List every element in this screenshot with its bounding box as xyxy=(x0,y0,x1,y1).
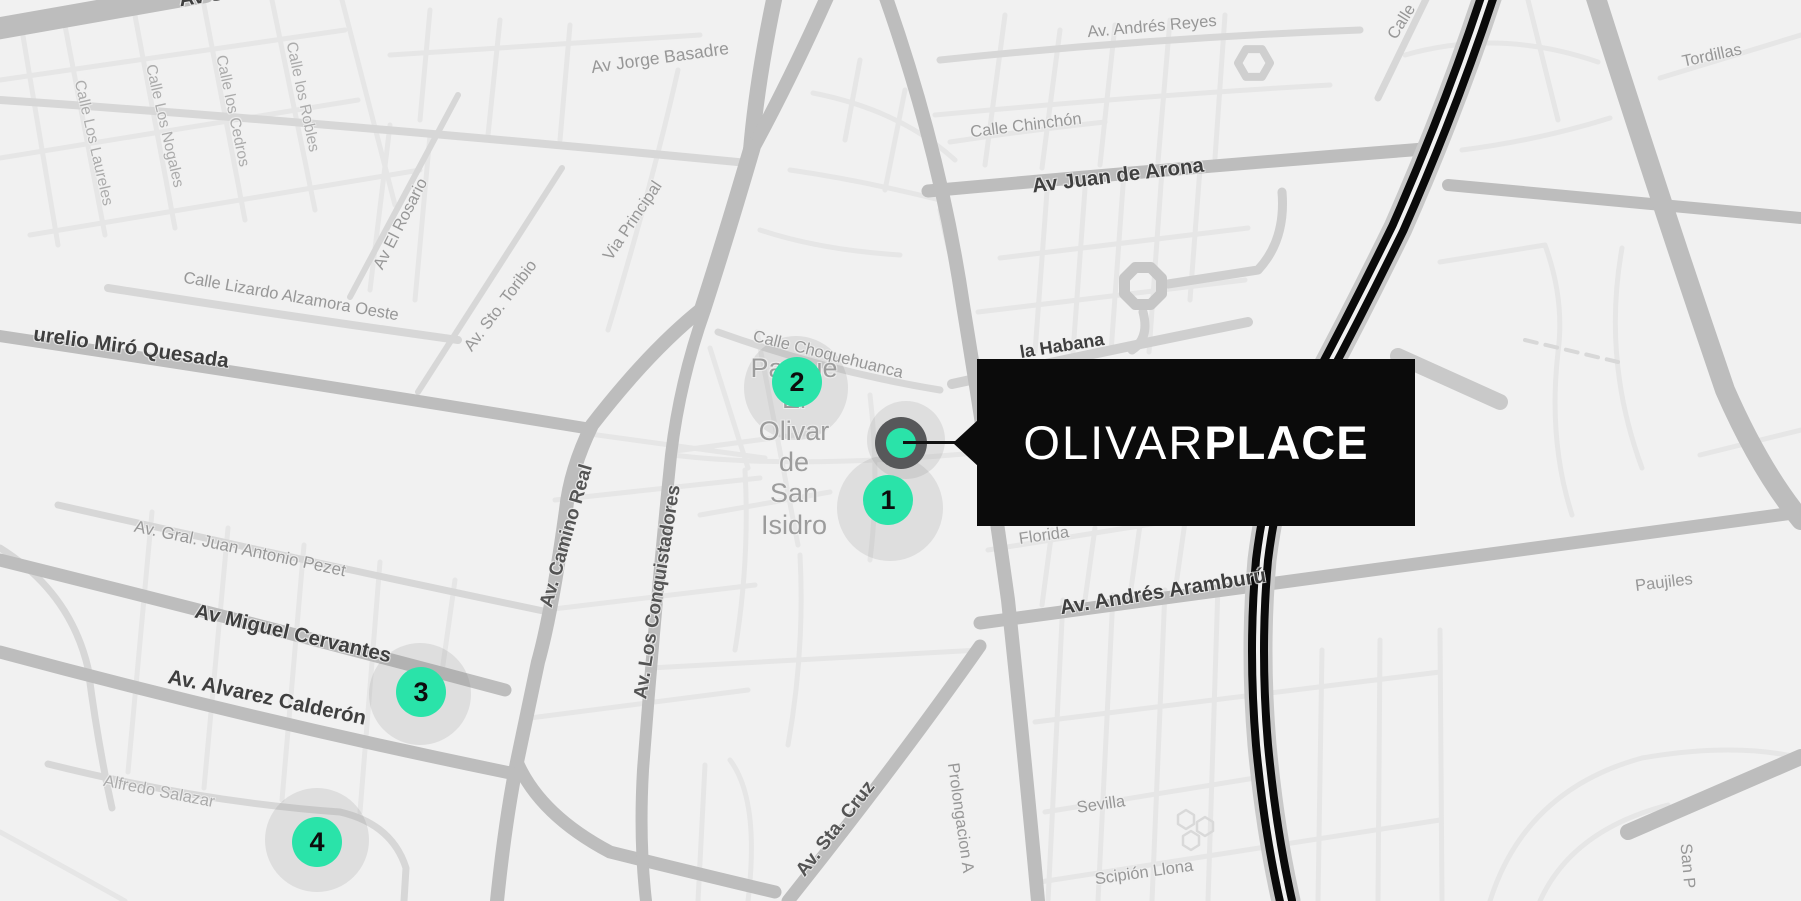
map-canvas[interactable]: Av SaCalle Los LaurelesCalle Los Nogales… xyxy=(0,0,1801,901)
boundary-dashed-line xyxy=(1525,340,1618,362)
street-label: San P xyxy=(1676,843,1699,889)
road-top-left xyxy=(0,0,205,30)
brand-name-light: OLIVAR xyxy=(1023,415,1204,470)
map-marker-1[interactable]: 1 xyxy=(863,475,913,525)
map-marker-2[interactable]: 2 xyxy=(772,357,822,407)
map-marker-4[interactable]: 4 xyxy=(292,817,342,867)
brand-name-bold: PLACE xyxy=(1204,415,1368,470)
roundabout-hexagon xyxy=(1238,49,1270,77)
brand-callout[interactable]: OLIVAR PLACE xyxy=(977,359,1415,526)
callout-pointer xyxy=(953,419,979,467)
map-marker-3[interactable]: 3 xyxy=(396,667,446,717)
road-east-diagonal xyxy=(1595,0,1801,520)
